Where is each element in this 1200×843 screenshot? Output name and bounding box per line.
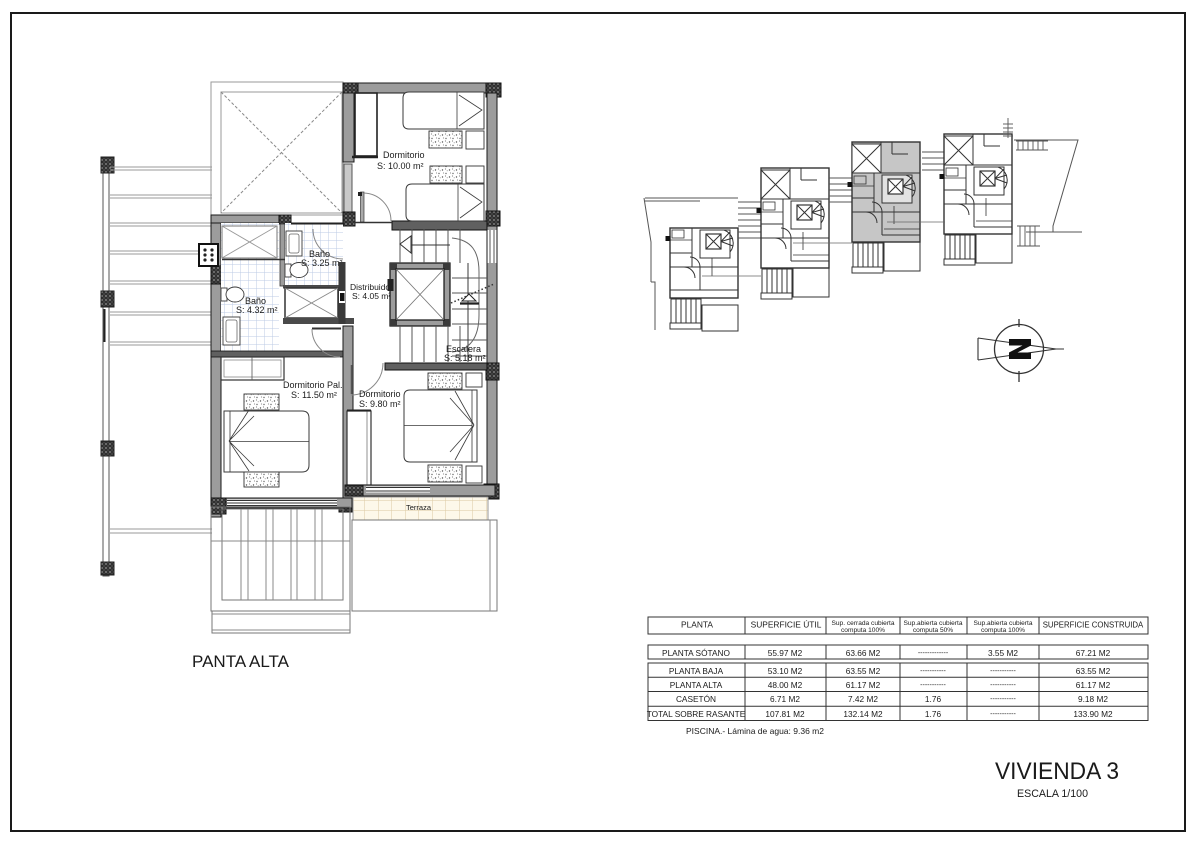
svg-text:computa 100%: computa 100% <box>981 627 1025 634</box>
svg-text:S: 3.25 m²: S: 3.25 m² <box>301 258 343 268</box>
svg-text:-----------: ----------- <box>990 696 1016 703</box>
svg-text:63.66 M2: 63.66 M2 <box>846 648 881 658</box>
svg-text:Sup. cerrada cubierta: Sup. cerrada cubierta <box>831 620 894 627</box>
svg-text:Dormitorio: Dormitorio <box>359 389 401 399</box>
svg-text:PLANTA: PLANTA <box>681 620 713 630</box>
svg-text:computa 50%: computa 50% <box>913 627 953 634</box>
svg-text:S: 9.80 m²: S: 9.80 m² <box>359 399 401 409</box>
svg-text:Sup.abierta cubierta: Sup.abierta cubierta <box>973 620 1032 627</box>
svg-text:PLANTA SÓTANO: PLANTA SÓTANO <box>662 648 730 658</box>
svg-text:7.42 M2: 7.42 M2 <box>848 694 878 704</box>
svg-text:S: 11.50 m²: S: 11.50 m² <box>291 390 337 400</box>
svg-text:PISCINA.- Lámina de agua: 9.36: PISCINA.- Lámina de agua: 9.36 m2 <box>686 726 824 736</box>
svg-text:Dormitorio Pal.: Dormitorio Pal. <box>283 380 343 390</box>
svg-text:63.55 M2: 63.55 M2 <box>1076 666 1111 676</box>
svg-text:3.55 M2: 3.55 M2 <box>988 648 1018 658</box>
svg-text:63.55 M2: 63.55 M2 <box>846 666 881 676</box>
svg-text:S: 10.00 m²: S: 10.00 m² <box>377 161 424 171</box>
svg-text:SUPERFICIE CONSTRUIDA: SUPERFICIE CONSTRUIDA <box>1043 621 1144 630</box>
svg-text:S: 4.05 m²: S: 4.05 m² <box>352 291 391 301</box>
svg-text:-----------: ----------- <box>920 682 946 689</box>
svg-text:CASETÓN: CASETÓN <box>676 694 716 704</box>
svg-text:SUPERFICIE ÚTIL: SUPERFICIE ÚTIL <box>751 620 822 630</box>
svg-text:-------------: ------------- <box>918 650 949 657</box>
svg-text:-----------: ----------- <box>990 711 1016 718</box>
svg-text:S: 5.18 m²: S: 5.18 m² <box>444 353 486 363</box>
svg-text:S: 4.32 m²: S: 4.32 m² <box>236 305 278 315</box>
svg-text:-----------: ----------- <box>990 682 1016 689</box>
svg-text:Sup.abierta cubierta: Sup.abierta cubierta <box>903 620 962 627</box>
svg-text:VIVIENDA 3: VIVIENDA 3 <box>995 758 1119 785</box>
svg-text:107.81 M2: 107.81 M2 <box>765 709 805 719</box>
svg-text:computa 100%: computa 100% <box>841 627 885 634</box>
svg-text:61.17 M2: 61.17 M2 <box>846 680 881 690</box>
svg-text:53.10 M2: 53.10 M2 <box>768 666 803 676</box>
svg-text:Terraza: Terraza <box>406 503 432 512</box>
svg-text:PLANTA ALTA: PLANTA ALTA <box>670 680 723 690</box>
svg-text:1.76: 1.76 <box>925 694 942 704</box>
svg-text:6.71 M2: 6.71 M2 <box>770 694 800 704</box>
svg-text:9.18 M2: 9.18 M2 <box>1078 694 1108 704</box>
svg-text:1.76: 1.76 <box>925 709 942 719</box>
svg-text:-----------: ----------- <box>990 668 1016 675</box>
svg-text:ESCALA 1/100: ESCALA 1/100 <box>1017 788 1088 800</box>
svg-text:61.17 M2: 61.17 M2 <box>1076 680 1111 690</box>
svg-text:132.14 M2: 132.14 M2 <box>843 709 883 719</box>
svg-text:PANTA ALTA: PANTA ALTA <box>192 652 290 671</box>
svg-text:133.90 M2: 133.90 M2 <box>1073 709 1113 719</box>
svg-text:PLANTA BAJA: PLANTA BAJA <box>669 666 724 676</box>
svg-text:TOTAL SOBRE RASANTE: TOTAL SOBRE RASANTE <box>647 709 746 719</box>
svg-text:-----------: ----------- <box>920 668 946 675</box>
svg-text:67.21 M2: 67.21 M2 <box>1076 648 1111 658</box>
svg-text:48.00 M2: 48.00 M2 <box>768 680 803 690</box>
svg-text:Dormitorio: Dormitorio <box>383 150 425 160</box>
svg-text:55.97 M2: 55.97 M2 <box>768 648 803 658</box>
